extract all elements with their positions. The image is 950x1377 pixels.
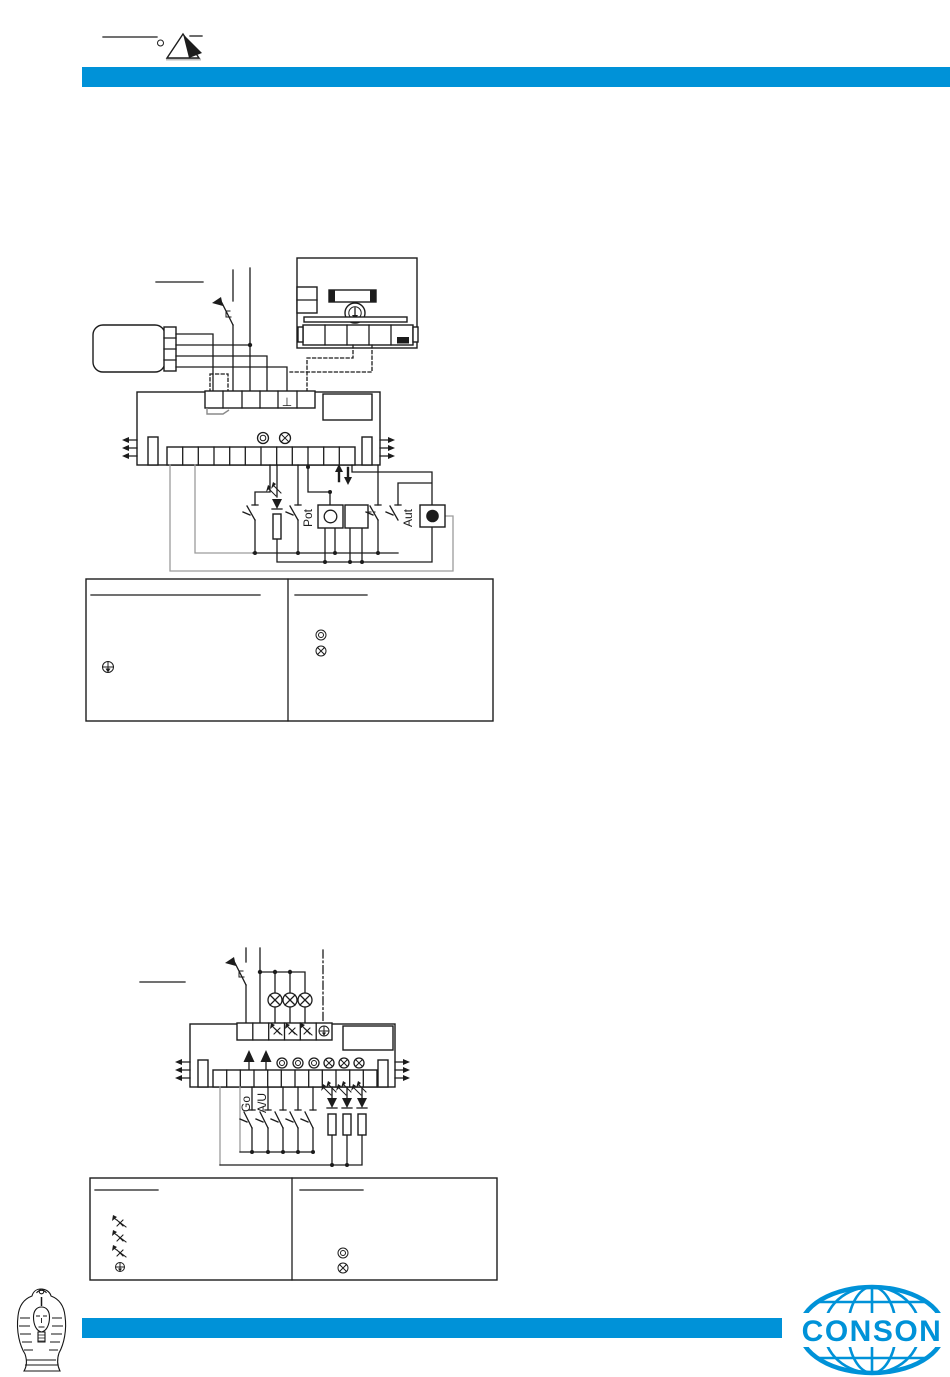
chip-mark xyxy=(397,337,409,344)
led-with-resistor xyxy=(336,1081,352,1135)
page-canvas: ⊥ xyxy=(0,0,950,1377)
knob-arrow-icon xyxy=(103,662,114,673)
resistor xyxy=(273,514,281,539)
pharaoh-logo xyxy=(17,1289,65,1371)
manual-page: ⊥ xyxy=(0,0,950,1377)
label-plate xyxy=(323,394,372,420)
sensor-box xyxy=(420,505,445,527)
lamp-icon xyxy=(268,993,282,1007)
push-button-pot xyxy=(286,505,301,520)
gray-return-wires xyxy=(220,1087,240,1165)
top-divider-bar xyxy=(82,67,950,87)
bus-arrows-right xyxy=(380,437,395,459)
motor-body xyxy=(93,325,165,372)
push-button-1 xyxy=(243,505,258,520)
footer: CONSON xyxy=(17,1287,947,1373)
header-pyramid-logo xyxy=(103,34,202,60)
motor-unit xyxy=(93,325,287,393)
aux-box xyxy=(345,505,368,528)
au-label: A/U xyxy=(255,1093,269,1113)
legend-frame xyxy=(86,579,493,721)
wiring-diagram-1: ⊥ xyxy=(86,258,493,721)
logo-circle-icon xyxy=(158,40,164,46)
potentiometer-box xyxy=(318,505,343,528)
conson-globe-logo: CONSON xyxy=(797,1287,947,1373)
brand-name: CONSON xyxy=(802,1315,943,1348)
legend-1 xyxy=(86,579,493,721)
led-with-resistor xyxy=(266,482,282,539)
wiring-diagram-2: Go A/U xyxy=(90,948,497,1280)
push-button-aut xyxy=(386,505,401,520)
external-controls: Go A/U xyxy=(220,1081,367,1167)
knob-arrow-icon xyxy=(116,1263,125,1272)
timer-terminal-strip xyxy=(303,325,413,345)
lamp-group xyxy=(258,970,312,1023)
main-module: ⊥ xyxy=(122,391,395,485)
control-timer-module xyxy=(290,258,418,391)
motor-wires xyxy=(176,334,287,391)
push-button xyxy=(286,1110,301,1128)
push-button xyxy=(271,1110,286,1128)
legend-frame xyxy=(90,1178,497,1280)
up-down-arrows-icon xyxy=(335,464,352,485)
bus-arrows-left xyxy=(122,437,137,459)
bottom-divider-bar xyxy=(82,1318,782,1338)
mains-switch-icon xyxy=(212,268,252,391)
ground-terminal-label: ⊥ xyxy=(282,395,292,409)
bus-arrows-left xyxy=(175,1059,190,1081)
bus-arrows-right xyxy=(395,1059,410,1081)
label-plate xyxy=(343,1026,393,1050)
ground-terminal-icon xyxy=(319,1026,329,1036)
dimmer-module xyxy=(175,1023,410,1087)
led-with-resistor xyxy=(351,1081,367,1135)
led-with-resistor xyxy=(321,1081,337,1135)
legend-2 xyxy=(90,1178,497,1280)
lamp-icon xyxy=(298,993,312,1007)
push-button xyxy=(301,1110,316,1128)
lamp-icon xyxy=(283,993,297,1007)
mains-switch-icon xyxy=(225,948,260,1023)
pot-label: Pot xyxy=(301,508,315,527)
display-slot xyxy=(329,290,376,302)
go-label: Go xyxy=(239,1096,253,1112)
slot-bar xyxy=(304,317,407,322)
aut-label: Aut xyxy=(401,508,415,527)
bus-link-dashed xyxy=(290,345,372,391)
external-controls: Pot Aut xyxy=(170,465,453,571)
